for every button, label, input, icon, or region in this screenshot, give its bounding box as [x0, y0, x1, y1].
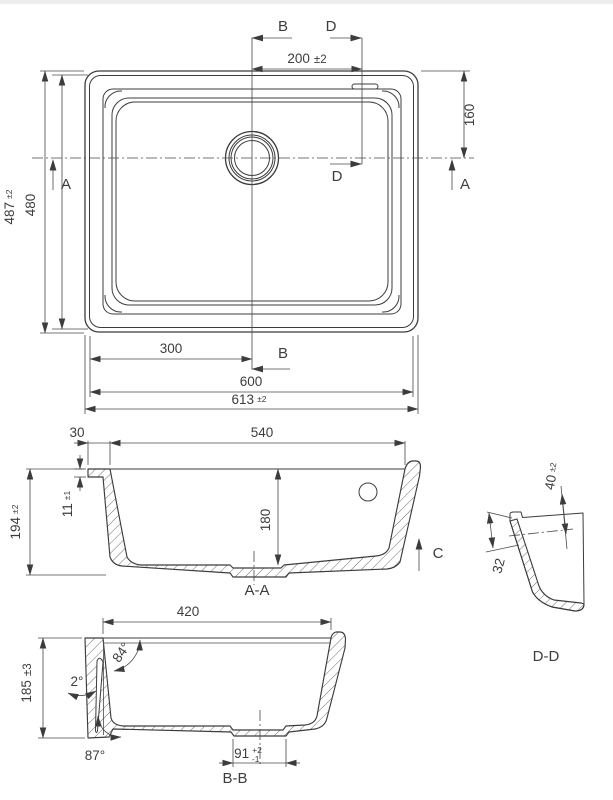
drawing-page: B D 200±2 160 487±2 480 A A 300 B D 600 … — [0, 0, 613, 800]
dim-text-185: 185±3 — [19, 663, 34, 702]
window-top-edge — [0, 0, 613, 4]
label-section-b-top: B — [278, 18, 288, 35]
view-label-aa: A-A — [244, 582, 269, 599]
angle-text-2: 2° — [71, 674, 84, 689]
label-section-b-bottom: B — [278, 345, 288, 362]
angle-text-87: 87° — [85, 748, 105, 763]
view-label-bb: B-B — [222, 770, 247, 787]
engineering-drawing: B D 200±2 160 487±2 480 A A 300 B D 600 … — [0, 0, 613, 800]
dim-text-160: 160 — [462, 104, 477, 127]
dim-text-200: 200±2 — [287, 51, 326, 66]
dim-text-480: 480 — [23, 194, 38, 217]
dim-text-30: 30 — [69, 425, 84, 440]
label-section-a-left: A — [61, 176, 71, 193]
view-label-dd: D-D — [533, 648, 560, 665]
label-section-c: C — [433, 545, 444, 562]
label-section-d-mid: D — [332, 168, 343, 185]
dim-text-300: 300 — [160, 341, 183, 356]
label-section-a-right: A — [460, 176, 470, 193]
dim-text-420: 420 — [177, 604, 200, 619]
dim-text-600: 600 — [240, 374, 263, 389]
dim-text-180: 180 — [258, 509, 273, 532]
dim-text-540: 540 — [251, 425, 274, 440]
label-section-d-top: D — [326, 18, 337, 35]
